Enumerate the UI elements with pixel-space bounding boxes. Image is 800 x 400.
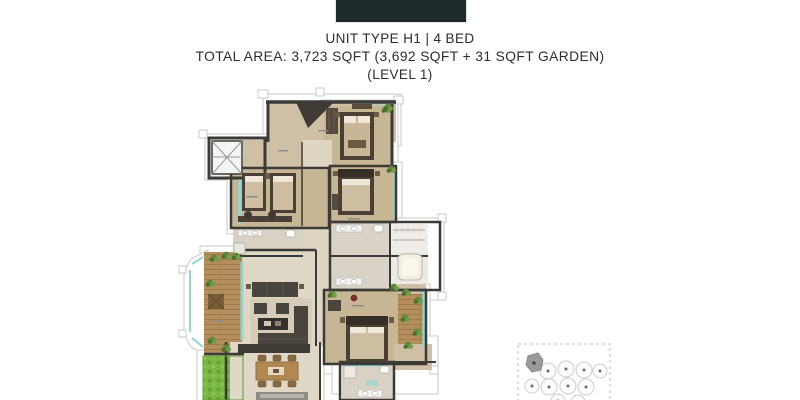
key-plan bbox=[518, 344, 610, 400]
elevator bbox=[212, 141, 242, 174]
brochure-page: UNIT TYPE H1 | 4 BED TOTAL AREA: 3,723 S… bbox=[0, 0, 800, 400]
key-plan-highlighted-building bbox=[526, 353, 543, 372]
floor-plan bbox=[0, 0, 800, 400]
